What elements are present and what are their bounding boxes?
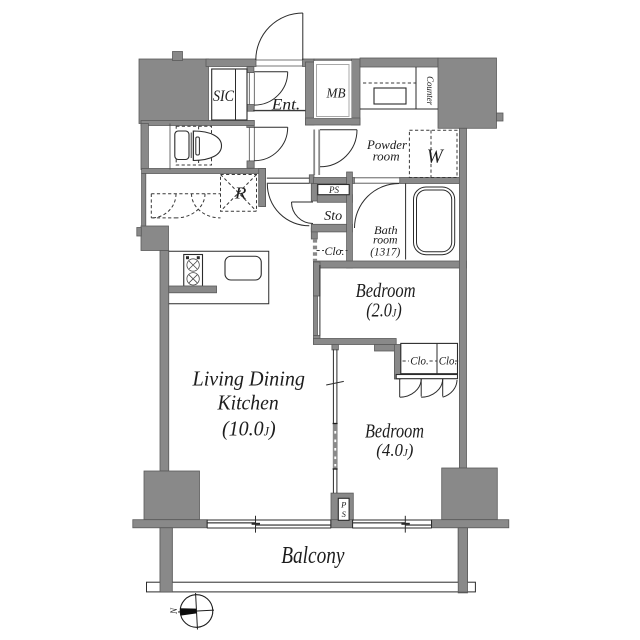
- svg-text:Clo.: Clo.: [325, 244, 345, 258]
- svg-text:PS: PS: [328, 185, 339, 195]
- svg-text:Ent.: Ent.: [271, 97, 301, 114]
- svg-text:Sto: Sto: [324, 209, 342, 224]
- svg-text:N: N: [169, 607, 179, 615]
- svg-text:P: P: [340, 500, 346, 510]
- svg-text:room: room: [373, 148, 400, 163]
- svg-text:(4.0J): (4.0J): [376, 440, 413, 460]
- svg-text:Balcony: Balcony: [281, 543, 345, 569]
- svg-text:W: W: [427, 146, 445, 168]
- svg-text:Bedroom: Bedroom: [356, 280, 416, 302]
- svg-text:(2.0J): (2.0J): [366, 301, 402, 322]
- svg-text:Clo.: Clo.: [439, 353, 458, 367]
- svg-text:Bedroom: Bedroom: [365, 420, 424, 442]
- svg-text:SIC: SIC: [213, 88, 235, 105]
- svg-text:MB: MB: [326, 86, 346, 101]
- svg-text:(1317): (1317): [370, 244, 400, 258]
- svg-text:Clo.: Clo.: [410, 353, 429, 367]
- svg-text:Kitchen: Kitchen: [217, 391, 279, 415]
- svg-text:S: S: [342, 509, 347, 519]
- svg-text:Living Dining: Living Dining: [192, 366, 306, 390]
- svg-text:Counter: Counter: [425, 76, 435, 105]
- svg-text:R: R: [234, 184, 247, 203]
